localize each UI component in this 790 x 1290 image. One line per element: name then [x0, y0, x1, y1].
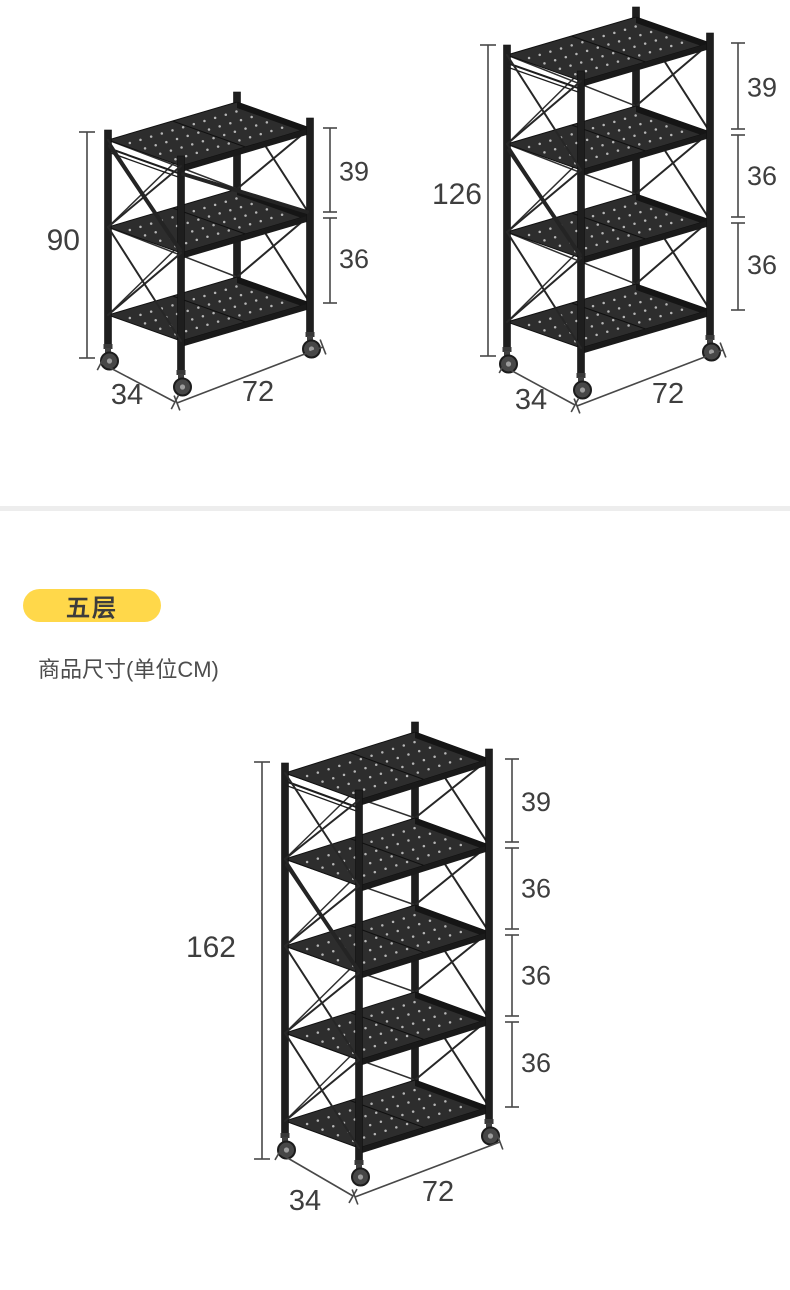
rack-four-tier-gap-label-0: 39 [747, 73, 777, 103]
rack-four-tier-gap-label-2: 36 [747, 250, 777, 280]
rack-post [486, 749, 493, 1121]
rack-post [307, 118, 314, 334]
rack-three-tier-height-label: 90 [47, 224, 80, 257]
caster-wheel [574, 373, 591, 399]
shelf-3 [507, 194, 710, 264]
shelf-1 [285, 732, 489, 806]
rack-three-tier-diagram: 9039363472 [47, 92, 369, 411]
rack-five-tier-gap-label-1: 36 [521, 874, 551, 904]
rack-four-tier-height-label: 126 [432, 178, 482, 211]
rack-five-tier-height-label: 162 [186, 931, 236, 964]
rack-three-tier-width-label: 72 [242, 376, 274, 408]
rack-four-tier-depth-label: 34 [515, 384, 547, 416]
rack-three-tier-dimensions: 9039363472 [47, 128, 369, 411]
rack-five-tier-gap-label-0: 39 [521, 787, 551, 817]
rack-five-tier-gap-label-2: 36 [521, 961, 551, 991]
rack-five-tier-width-label: 72 [422, 1176, 454, 1208]
rack-five-tier-depth-label: 34 [289, 1185, 321, 1217]
rack-three-tier-gap-label-0: 39 [339, 157, 369, 187]
shelf-2 [507, 106, 710, 176]
rack-three-tier-gap-label-1: 36 [339, 244, 369, 274]
rack-four-tier-diagram: 1263936363472 [432, 7, 777, 416]
tier-count-badge: 五层 [23, 589, 161, 622]
dimensions-caption: 商品尺寸(单位CM) [38, 652, 219, 684]
product-dimension-page: 90393634721263936363472162393636363472 五… [0, 0, 790, 1290]
shelf-1 [108, 102, 310, 172]
caster-wheel [174, 370, 191, 396]
caster-wheel [482, 1119, 499, 1145]
rack-five-tier-gap-label-3: 36 [521, 1048, 551, 1078]
rack-post [578, 71, 585, 375]
section-divider [0, 506, 790, 511]
shelf-2 [108, 189, 310, 259]
rack-five-tier-diagram: 162393636363472 [186, 722, 551, 1217]
shelf-1 [507, 17, 710, 87]
shelf-3 [108, 277, 310, 347]
caster-wheel [352, 1160, 369, 1186]
rack-post [504, 45, 511, 349]
rack-diagram-canvas: 90393634721263936363472162393636363472 [0, 0, 790, 1290]
tier-count-badge-label: 五层 [66, 588, 118, 623]
rack-post [707, 33, 714, 337]
rack-four-tier-gap-label-1: 36 [747, 161, 777, 191]
rack-four-tier-width-label: 72 [652, 378, 684, 410]
rack-three-tier-depth-label: 34 [111, 379, 143, 411]
